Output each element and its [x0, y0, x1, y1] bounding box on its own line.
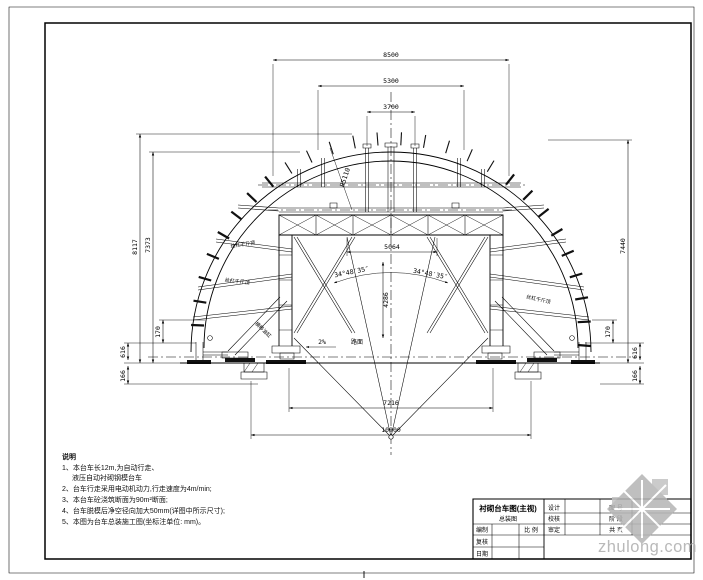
note-line: 2、台车行走采用电动机动力,行走速度为4m/min; — [62, 484, 212, 493]
dim-top-inner: 3700 — [383, 103, 399, 111]
dims-right: 7440 616 166 170 — [548, 140, 644, 384]
dim-vault-height: 4286 — [382, 292, 390, 308]
dim-right-foot: 616 — [631, 347, 639, 359]
cad-drawing: 2% 路面 8500 5300 3700 5064 4286 R5110 34°… — [0, 0, 703, 580]
notes-block: 说明 1、本台车长12m,为自动行走、 液压自动衬砌钢模台车 2、台车行走采用电… — [62, 452, 225, 526]
dim-right-foundation: 166 — [631, 370, 639, 382]
dim-angle-left: 34°48′35″ — [334, 265, 370, 280]
label-strut-left-lower: 丝杠千斤顶 — [224, 277, 250, 287]
label-strut-right: 丝杠千斤顶 — [525, 293, 551, 305]
titleblock-mid-row: 审定 — [548, 526, 560, 534]
dim-beam-inner: 5064 — [384, 243, 400, 251]
titleblock-scale-label: 比 例 — [524, 526, 538, 534]
note-line: 液压自动衬砌钢模台车 — [72, 473, 142, 482]
dim-bottom-inner: 7216 — [383, 399, 399, 407]
main-beam — [279, 215, 503, 235]
note-line: 5、本图为台车总装施工图(坐标注单位: mm)。 — [62, 517, 205, 526]
slope-label: 2% — [318, 338, 326, 346]
titleblock-left-row: 复核 — [476, 538, 488, 546]
titleblock-left-row: 编制 — [476, 526, 488, 534]
note-line: 4、台车脱模后净空径向加大50mm(详图中所示尺寸); — [62, 506, 225, 515]
dims-bottom: 7216 10000 — [251, 368, 531, 439]
watermark: zhulong.com — [598, 474, 697, 556]
component-labels: 丝杠千斤顶 丝杠千斤顶 丝杠千斤顶 横移油缸 — [224, 239, 551, 339]
dim-left-foot: 616 — [119, 346, 127, 358]
titleblock-subtitle: 总装图 — [499, 515, 517, 523]
dim-top-middle: 5300 — [383, 77, 399, 85]
note-line: 3、本台车砼浇筑断面为90m²断面; — [62, 495, 168, 504]
dim-left-travel: 170 — [154, 326, 162, 338]
titleblock-left-row: 日期 — [476, 550, 488, 558]
note-line: 1、本台车长12m,为自动行走、 — [62, 463, 158, 472]
dim-top-outer: 8500 — [383, 51, 399, 59]
dim-bottom-outer: 10000 — [381, 426, 401, 434]
label-leg-left: 横移油缸 — [253, 320, 272, 339]
titleblock-mid-row: 校核 — [548, 515, 560, 523]
dim-left-inner: 7373 — [144, 237, 152, 253]
top-platform — [262, 143, 521, 212]
titleblock-title: 衬砌台车图(主视) — [479, 503, 537, 513]
watermark-text: zhulong.com — [598, 538, 697, 556]
titleblock-mid-row: 设计 — [548, 504, 560, 512]
notes-heading: 说明 — [62, 452, 76, 461]
dim-left-outer: 8117 — [131, 239, 139, 255]
dims-left: 8117 7373 616 166 170 — [119, 134, 352, 384]
radial-jacks-left — [193, 205, 292, 320]
dim-right-travel: 170 — [604, 326, 612, 338]
dim-angle-right: 34°48′35″ — [412, 267, 448, 282]
dim-left-foundation: 166 — [119, 370, 127, 382]
label-strut-left-upper: 丝杠千斤顶 — [230, 239, 256, 249]
dim-right-height: 7440 — [619, 238, 627, 254]
road-label: 路面 — [351, 338, 363, 346]
drawing-sheet: 2% 路面 8500 5300 3700 5064 4286 R5110 34°… — [0, 0, 703, 580]
